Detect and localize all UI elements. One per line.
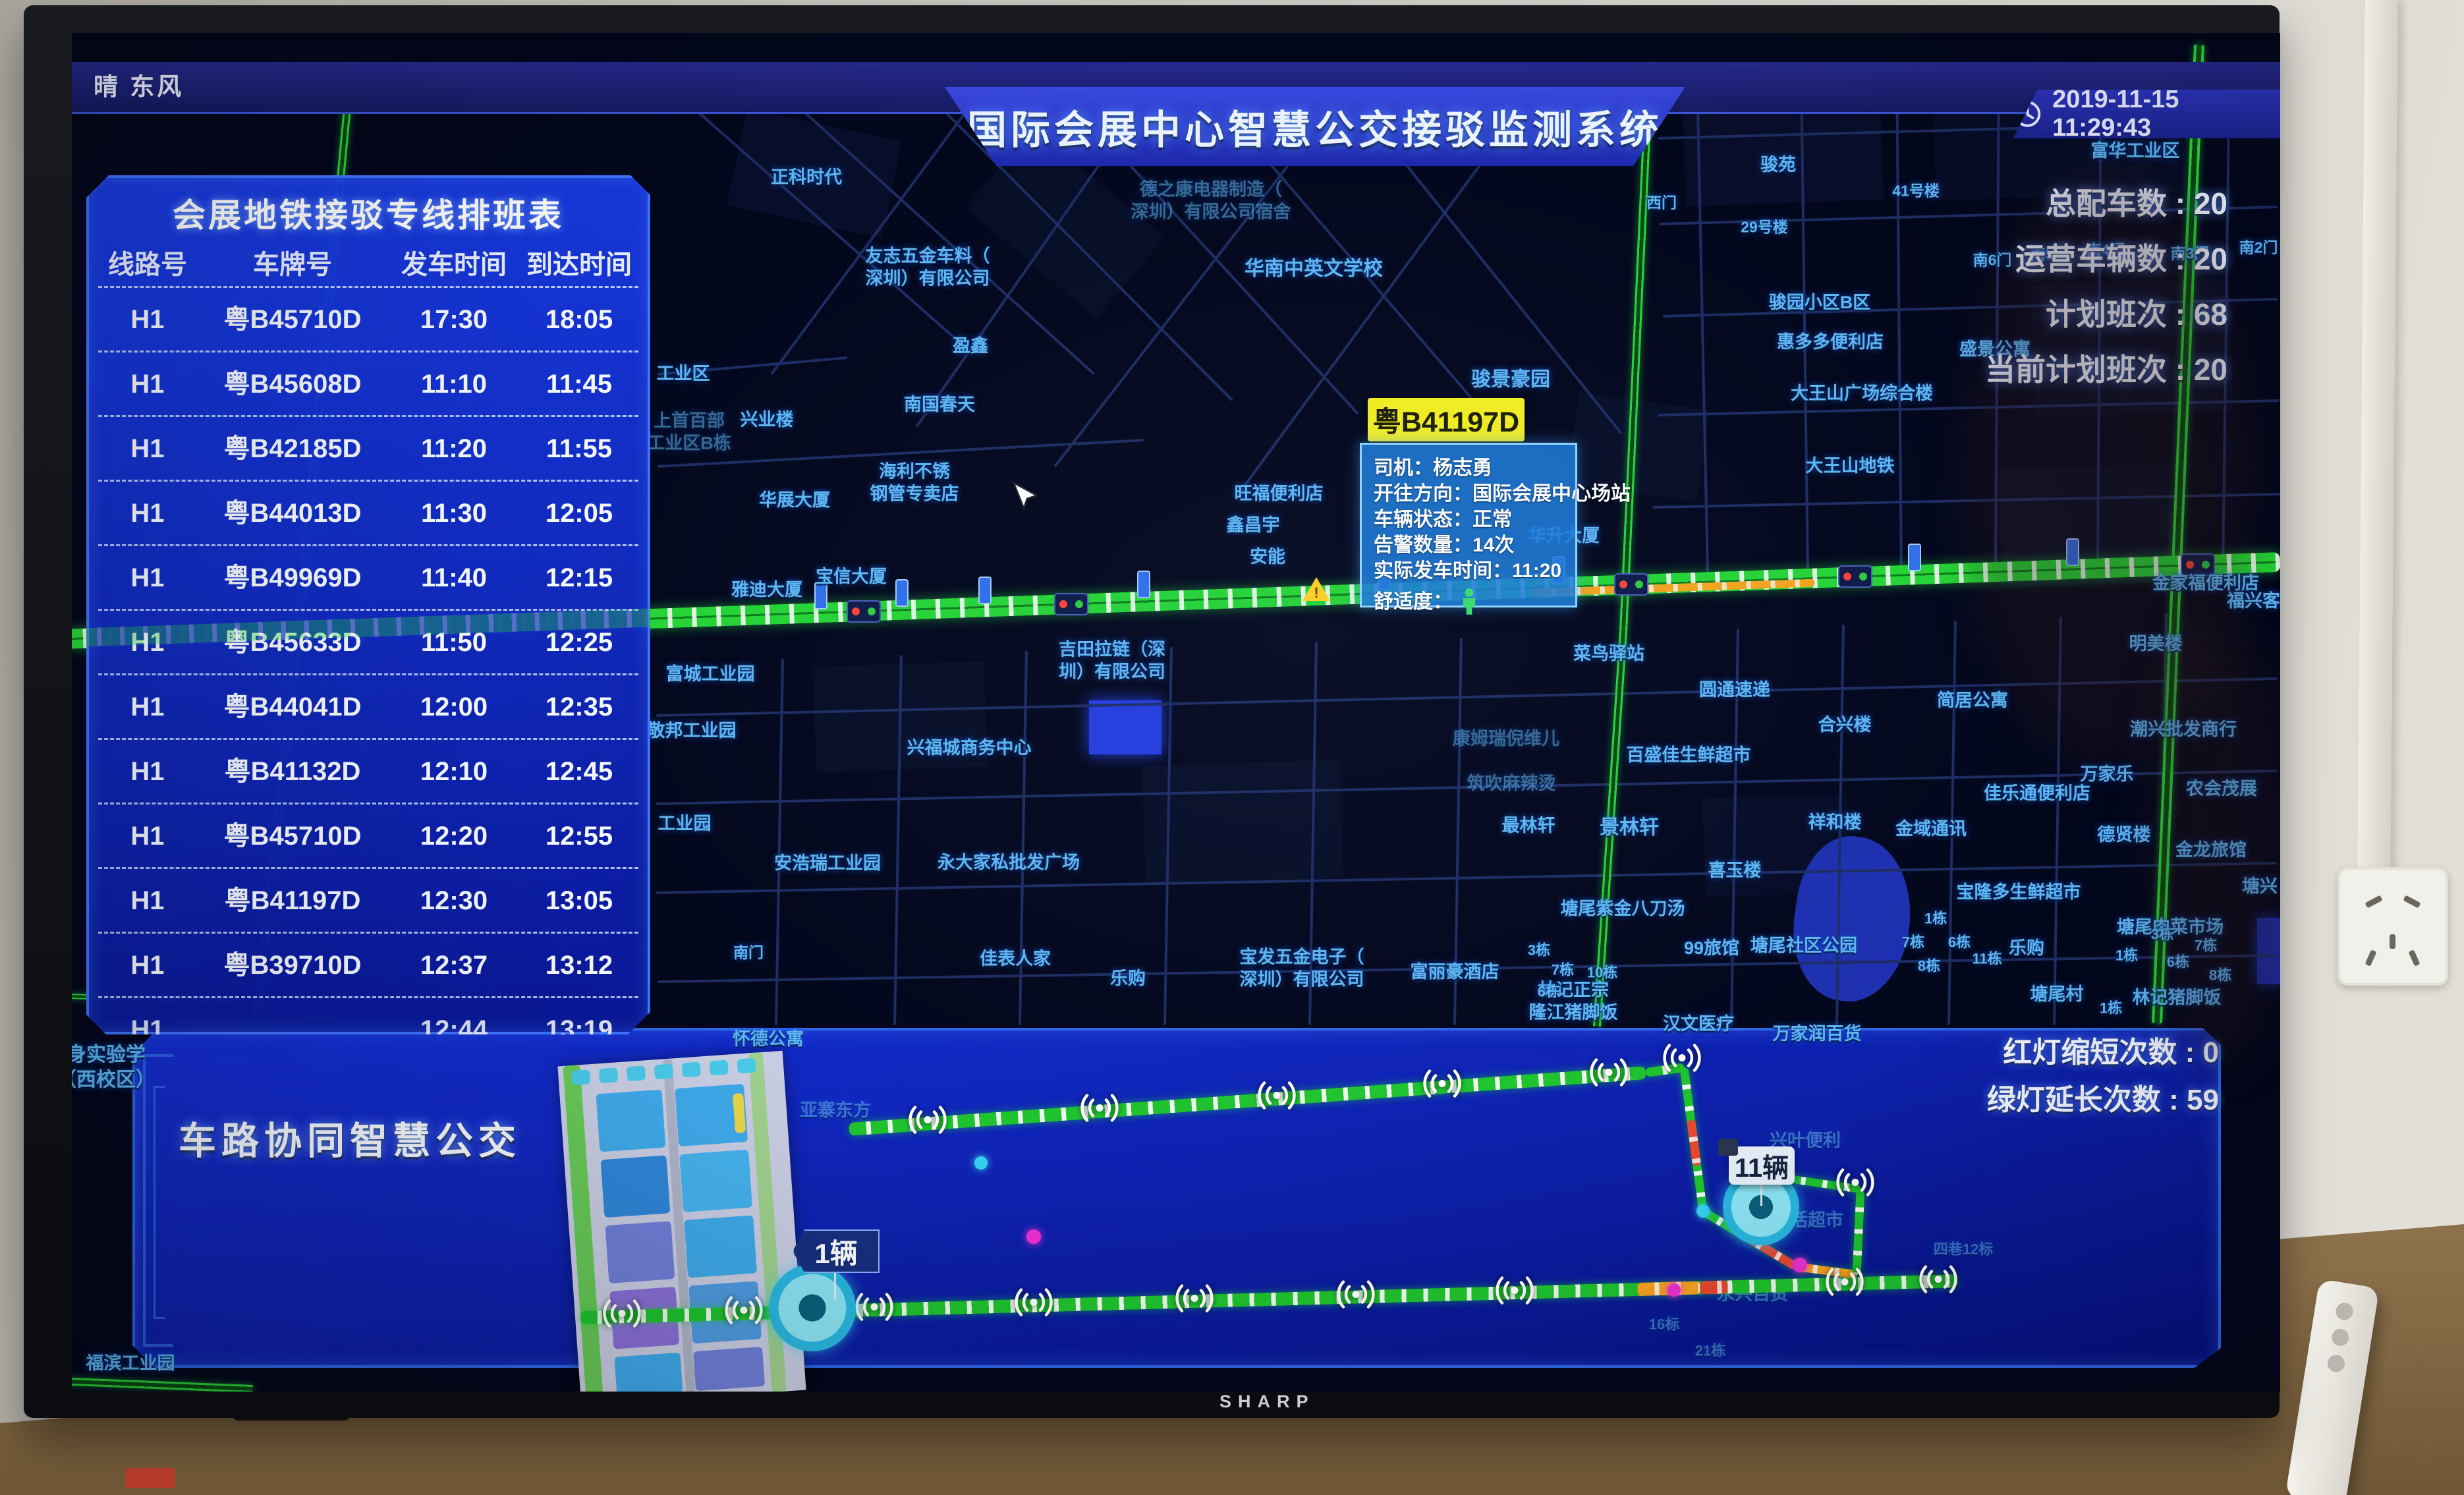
bus-info-popup: 司机：杨志勇开往方向：国际会展中心场站车辆状态：正常告警数量：14次实际发车时间… xyxy=(1360,443,1577,607)
cell-depart: 11:30 xyxy=(388,483,520,544)
map-label: 农会茂展 xyxy=(2186,778,2257,801)
green-road xyxy=(72,1376,253,1392)
highlighted-block xyxy=(1089,700,1162,754)
map-label: 怀德公寓 xyxy=(733,1029,804,1051)
map-label: 8栋 xyxy=(1918,957,1940,975)
route-status-segment xyxy=(1700,1280,1728,1294)
map-label: 景林轩 xyxy=(1600,815,1659,840)
traffic-light-icon xyxy=(847,600,881,623)
cell-depart: 12:30 xyxy=(388,870,520,931)
cell-line: H1 xyxy=(98,483,197,544)
map-label: 工业园 xyxy=(658,813,712,835)
exhibition-hall xyxy=(679,1150,752,1212)
map-label: 金龙旅馆 xyxy=(2175,839,2247,862)
map-label: 华展大厦 xyxy=(759,490,830,512)
schedule-row: H1粤B49969D11:4012:15 xyxy=(98,546,638,611)
map-label: 南国春天 xyxy=(904,394,975,416)
cell-plate: 粤B41132D xyxy=(197,741,388,802)
map-label: 德贤楼 xyxy=(2098,824,2151,847)
stat-value: 0 xyxy=(2203,1036,2219,1069)
map-label: 富丽豪酒店 xyxy=(1411,961,1499,984)
map-viewport[interactable]: ! 富华工业区正科时代友志五金车料（ 深圳）有限公司德之康电器制造（ 深圳）有限… xyxy=(72,33,2280,1392)
highlighted-block xyxy=(2257,918,2280,984)
kpi-3: 当前计划班次 : 20 xyxy=(1985,351,2227,389)
cell-line: H1 xyxy=(98,806,197,866)
photo-scene: SHARP ! 富华工业区正科时代友志五金车料（ 深圳）有限公司德之康电器制造（… xyxy=(0,0,2464,1495)
map-label: 骏景豪园 xyxy=(1471,367,1550,392)
cell-line: H1 xyxy=(98,677,197,737)
schedule-row: H1粤B45608D11:1011:45 xyxy=(98,353,638,417)
roadside-unit-icon xyxy=(1834,1168,1876,1200)
cell-plate: 粤B39710D xyxy=(197,935,388,996)
field-value: 杨志勇 xyxy=(1433,457,1492,479)
hall-roof xyxy=(599,1067,618,1083)
map-label: 21栋 xyxy=(1695,1341,1725,1360)
map-label: 旺福便利店 xyxy=(1235,483,1324,505)
map-label: 筑吹麻辣烫 xyxy=(1467,773,1556,795)
badge-stem xyxy=(834,1269,836,1299)
map-label: 99旅馆 xyxy=(1684,938,1739,960)
map-label: 正科时代 xyxy=(771,167,842,189)
column-header: 到达时间 xyxy=(520,244,638,286)
comfort-row: 舒适度： xyxy=(1374,588,1563,615)
map-label: 康姆瑞倪维儿 xyxy=(1453,728,1559,750)
roadside-unit-icon xyxy=(1421,1069,1463,1102)
cell-arrive: 12:55 xyxy=(520,806,638,866)
map-label: 29号楼 xyxy=(1741,218,1788,237)
map-label: 安浩瑞工业园 xyxy=(774,853,881,875)
map-label: 11栋 xyxy=(1972,949,2002,968)
map-label: 华南中英文学校 xyxy=(1245,256,1383,281)
roadside-unit-icon xyxy=(1013,1288,1055,1320)
hall-roof xyxy=(654,1063,673,1079)
cell-depart: 12:10 xyxy=(388,741,520,802)
bus-stop-icon xyxy=(978,577,992,604)
traffic-light-icon xyxy=(1054,593,1088,615)
map-label: 富城工业园 xyxy=(666,663,755,686)
column-header: 车牌号 xyxy=(197,244,388,286)
map-label: 6栋 xyxy=(2167,953,2189,971)
hall-roof xyxy=(571,1069,590,1085)
cell-depart: 17:30 xyxy=(388,289,520,350)
cell-line: H1 xyxy=(98,741,197,802)
map-label: 南6门 xyxy=(1973,251,2012,270)
cell-line: H1 xyxy=(98,935,197,996)
vehicle-dot xyxy=(1696,1204,1710,1218)
vehicle-dot xyxy=(974,1156,988,1170)
map-label: 合兴楼 xyxy=(1818,714,1872,737)
map-label: 南2门 xyxy=(2239,239,2278,258)
stat-label: 绿灯延长次数 xyxy=(1987,1084,2161,1116)
column-header: 线路号 xyxy=(98,244,197,286)
street-line xyxy=(1652,493,2280,509)
map-label: 佳乐通便利店 xyxy=(1984,783,2090,805)
map-label: 菜鸟驿站 xyxy=(1573,643,1644,665)
map-label: 潮兴批发商行 xyxy=(2130,719,2237,741)
map-label: 1栋 xyxy=(2115,946,2138,965)
popup-field: 实际发车时间：11:20 xyxy=(1374,558,1563,584)
vehicle-count-badge[interactable]: 1辆 xyxy=(793,1229,880,1273)
cell-arrive: 12:05 xyxy=(520,483,638,544)
map-label: 7栋 xyxy=(2195,936,2217,955)
bus-stop-icon xyxy=(1908,544,1921,571)
cell-depart: 12:44 xyxy=(388,1000,520,1035)
map-label: 翻身实验学 校（西校区） xyxy=(72,1043,155,1092)
roadside-unit-icon xyxy=(1256,1081,1298,1114)
column-header: 发车时间 xyxy=(388,244,520,286)
map-label: 6栋 xyxy=(1538,982,1560,1001)
map-label: 骏苑 xyxy=(1760,154,1796,177)
map-label: 圆通速递 xyxy=(1699,679,1770,702)
cell-arrive: 13:05 xyxy=(520,870,638,931)
map-label: 惠多多便利店 xyxy=(1777,331,1884,354)
map-label: 简居公寓 xyxy=(1937,690,2008,712)
roadside-unit-icon xyxy=(1494,1276,1536,1309)
schedule-row: H1粤B41132D12:1012:45 xyxy=(98,740,638,804)
map-label: 大王山地铁 xyxy=(1806,455,1895,478)
flag-icon xyxy=(1718,1139,1738,1156)
schedule-row: H1粤B41197D12:3013:05 xyxy=(98,869,638,934)
map-label: 塘尾紫金八刀汤 xyxy=(1561,898,1685,920)
cell-arrive: 18:05 xyxy=(520,289,638,350)
schedule-row: H1粤B44041D12:0012:35 xyxy=(98,675,638,740)
comfort-label: 舒适度： xyxy=(1374,589,1453,615)
map-label: 大王山广场综合楼 xyxy=(1791,383,1933,405)
panel-decoration xyxy=(143,1054,173,1347)
cell-plate: 粤B45710D xyxy=(197,289,388,350)
schedule-row: H1粤B45710D17:3018:05 xyxy=(98,288,638,353)
kpi-1: 运营车辆数 : 20 xyxy=(2015,240,2227,278)
map-label: 海利不锈 钢管专卖店 xyxy=(870,461,959,505)
hall-roof xyxy=(682,1061,701,1077)
cell-depart: 12:20 xyxy=(388,806,520,866)
map-label: 福滨工业园 xyxy=(86,1353,175,1375)
schedule-title: 会展地铁接驳专线排班表 xyxy=(98,187,638,244)
schedule-panel: 会展地铁接驳专线排班表 线路号车牌号发车时间到达时间 H1粤B45710D17:… xyxy=(86,175,650,1034)
cell-plate: 粤B45710D xyxy=(197,806,388,866)
schedule-row: H1粤B42185D11:2011:55 xyxy=(98,417,638,482)
map-label: 祥和楼 xyxy=(1808,812,1862,834)
map-label: 上首百部 工业区B栋 xyxy=(647,410,731,455)
cell-line: H1 xyxy=(98,870,197,931)
cell-line: H1 xyxy=(98,354,197,414)
roadside-unit-icon xyxy=(1335,1280,1377,1312)
cell-arrive: 12:45 xyxy=(520,741,638,802)
map-label: 佳表人家 xyxy=(980,948,1051,971)
field-label: 开往方向 xyxy=(1374,483,1453,505)
hall-roof xyxy=(709,1060,728,1076)
map-label: 塘尾社区公园 xyxy=(1750,935,1857,957)
map-label: 金域通讯 xyxy=(1895,818,1967,841)
map-label: 雅迪大厦 xyxy=(731,579,802,602)
signal-stat-1: 绿灯延长次数 : 59 xyxy=(1987,1081,2219,1120)
tv-bezel: SHARP ! 富华工业区正科时代友志五金车料（ 深圳）有限公司德之康电器制造（… xyxy=(24,5,2280,1418)
map-label: 10栋 xyxy=(1587,963,1617,982)
exhibition-hall xyxy=(596,1090,665,1152)
vehicle-count-badge[interactable]: 11辆 xyxy=(1729,1146,1795,1185)
roadside-unit-icon xyxy=(907,1106,949,1138)
map-inset-convention-center[interactable] xyxy=(557,1051,806,1392)
cell-line: H1 xyxy=(98,418,197,479)
map-label: 西门 xyxy=(1646,194,1677,213)
page-title: 国际会展中心智慧公交接驳监测系统 xyxy=(967,98,1663,155)
map-label: 万家润百货 xyxy=(1773,1023,1862,1046)
map-label: 百盛佳生鲜超市 xyxy=(1627,745,1751,767)
power-cable xyxy=(2357,0,2398,876)
cooperative-bus-title: 车路协同智慧公交 xyxy=(179,1111,521,1165)
map-label: 德之康电器制造（ 深圳）有限公司宿舍 xyxy=(1131,179,1291,223)
cell-line: H1 xyxy=(98,1000,197,1035)
exhibition-hall xyxy=(684,1215,757,1278)
cell-depart: 11:20 xyxy=(388,418,520,479)
schedule-header-row: 线路号车牌号发车时间到达时间 xyxy=(98,244,638,288)
badge-label: 11辆 xyxy=(1735,1146,1789,1185)
map-label: 林记猪脚饭 xyxy=(2133,987,2222,1009)
map-label: 宝隆多生鲜超市 xyxy=(1957,882,2081,904)
timestamp: 2019-11-15 11:29:43 xyxy=(2052,86,2280,142)
cell-arrive: 11:55 xyxy=(520,418,638,479)
cell-plate: 粤B42185D xyxy=(197,418,388,479)
schedule-row: H1粤B44013D11:3012:05 xyxy=(98,482,638,546)
map-label: 吉田拉链（深 圳）有限公司 xyxy=(1059,638,1165,683)
cell-plate: 粤B45608D xyxy=(197,354,388,414)
map-label: 工业区 xyxy=(657,363,710,385)
exhibition-hall xyxy=(614,1353,683,1392)
map-label: 宝信大厦 xyxy=(816,566,887,588)
traffic-light-icon xyxy=(1838,565,1872,588)
kpi-label: 计划班次 xyxy=(2046,297,2167,331)
mouse-cursor-icon xyxy=(1010,482,1040,515)
map-label: 四巷12标 xyxy=(1934,1240,1993,1258)
map-label: 宝发五金电子（ 深圳）有限公司 xyxy=(1240,946,1364,991)
cell-line: H1 xyxy=(98,289,197,350)
roadside-unit-icon xyxy=(601,1299,643,1332)
exhibition-hall xyxy=(748,1052,787,1392)
vehicle-dot xyxy=(1793,1258,1807,1272)
cell-plate: 粤B41197D xyxy=(197,870,388,931)
bus-info-fields: 司机：杨志勇开往方向：国际会展中心场站车辆状态：正常告警数量：14次实际发车时间… xyxy=(1374,455,1563,584)
vehicle-dot xyxy=(1667,1283,1681,1297)
map-label: 塘兴 xyxy=(2242,876,2278,898)
kpi-value: 20 xyxy=(2194,353,2227,387)
clock-strip: 2019-11-15 11:29:43 xyxy=(2013,90,2280,138)
map-label: 最林轩 xyxy=(1502,815,1555,837)
field-label: 司机 xyxy=(1374,457,1413,479)
map-label: 亚寨东方 xyxy=(800,1100,871,1122)
roadside-unit-icon xyxy=(1078,1094,1121,1126)
field-label: 车辆状态 xyxy=(1374,509,1453,530)
kpi-label: 总配车数 xyxy=(2046,186,2167,221)
popup-field: 司机：杨志勇 xyxy=(1374,455,1563,481)
stat-label: 红灯缩短次数 xyxy=(2003,1036,2177,1069)
kpi-value: 20 xyxy=(2194,186,2227,221)
bus-stop-icon xyxy=(1137,571,1150,598)
cell-arrive: 12:15 xyxy=(520,548,638,608)
field-value: 14次 xyxy=(1472,534,1514,556)
popup-field: 告警数量：14次 xyxy=(1374,532,1563,558)
map-label: 汉文医疗 xyxy=(1663,1013,1734,1036)
cell-arrive: 13:19 xyxy=(520,1000,638,1035)
hall-roof xyxy=(627,1065,646,1081)
street-line xyxy=(2053,617,2062,1025)
field-label: 告警数量 xyxy=(1374,534,1453,556)
map-label: 8栋 xyxy=(2209,966,2231,984)
map-label: 兴福城商务中心 xyxy=(907,737,1032,760)
kpi-value: 20 xyxy=(2194,242,2227,276)
popup-field: 车辆状态：正常 xyxy=(1374,507,1563,532)
map-label: 1栋 xyxy=(1924,909,1947,928)
map-label: 明美楼 xyxy=(2129,633,2183,656)
field-value: 11:20 xyxy=(1512,560,1561,582)
map-label: 16标 xyxy=(1649,1315,1679,1334)
map-label: 盈鑫 xyxy=(953,335,988,358)
cell-arrive: 12:35 xyxy=(520,677,638,737)
map-label: 安能 xyxy=(1250,546,1285,569)
power-outlet xyxy=(2338,867,2448,986)
weather-text: 晴 东风 xyxy=(94,62,184,112)
map-label: 喜玉楼 xyxy=(1708,860,1762,882)
roadside-unit-icon xyxy=(723,1296,765,1328)
map-label: 3栋 xyxy=(2151,925,2173,944)
roadside-unit-icon xyxy=(853,1293,895,1325)
signal-stat-0: 红灯缩短次数 : 0 xyxy=(2003,1033,2219,1073)
map-label: 富华工业区 xyxy=(2091,140,2180,163)
tv-screen: ! 富华工业区正科时代友志五金车料（ 深圳）有限公司德之康电器制造（ 深圳）有限… xyxy=(72,33,2280,1392)
map-label: 3栋 xyxy=(1528,941,1550,959)
map-label: 1栋 xyxy=(2100,999,2122,1017)
popup-field: 开往方向：国际会展中心场站 xyxy=(1374,481,1563,507)
bus-marker-tag[interactable]: 粤B41197D xyxy=(1368,398,1525,441)
cell-arrive: 13:12 xyxy=(520,935,638,996)
field-value: 国际会展中心场站 xyxy=(1472,483,1631,505)
cell-depart: 11:10 xyxy=(388,354,520,414)
roadside-unit-icon xyxy=(1661,1044,1703,1076)
map-label: 乐购 xyxy=(2009,938,2044,960)
map-label: 骏园小区B区 xyxy=(1769,292,1871,314)
roadside-unit-icon xyxy=(1917,1265,1959,1297)
field-value: 正常 xyxy=(1472,509,1512,530)
map-label: 友志五金车料（ 深圳）有限公司 xyxy=(866,245,990,290)
station-marker xyxy=(769,1264,856,1351)
cell-depart: 12:00 xyxy=(388,677,520,737)
exhibition-hall xyxy=(605,1221,675,1283)
street-line xyxy=(1895,71,1903,573)
kpi-0: 总配车数 : 20 xyxy=(2046,184,2227,223)
tv-brand-logo: SHARP xyxy=(1219,1392,1315,1412)
shelf-sticker xyxy=(125,1468,175,1488)
map-label: 7栋 xyxy=(1552,961,1574,979)
kpi-label: 当前计划班次 xyxy=(1985,353,2167,387)
map-label: 敬邦工业园 xyxy=(648,720,737,743)
roadside-unit-icon xyxy=(1173,1284,1216,1316)
cell-plate: 粤B44041D xyxy=(197,677,388,737)
map-label: 万家乐 xyxy=(2081,764,2134,786)
hall-roof xyxy=(737,1058,756,1074)
roadside-unit-icon xyxy=(1824,1268,1866,1300)
map-label: 6栋 xyxy=(1948,933,1971,951)
vehicle-dot xyxy=(1026,1229,1041,1244)
schedule-row: H112:4413:19 xyxy=(98,998,638,1034)
cell-line: H1 xyxy=(98,548,197,608)
map-label: 永大家私批发广场 xyxy=(938,852,1080,874)
badge-stem xyxy=(1760,1183,1762,1206)
cell-plate: 粤B49969D xyxy=(197,548,388,608)
title-banner: 国际会展中心智慧公交接驳监测系统 xyxy=(945,87,1685,166)
cell-depart: 11:40 xyxy=(388,548,520,608)
bus-stop-icon xyxy=(895,579,909,607)
map-label: 乐购 xyxy=(1110,968,1146,990)
traffic-light-icon xyxy=(1614,573,1648,596)
cooperative-bus-panel xyxy=(132,1028,2221,1368)
map-label: 鑫昌宇 xyxy=(1227,515,1280,537)
schedule-row: H1粤B39710D12:3713:12 xyxy=(98,934,638,998)
map-label: 41号楼 xyxy=(1892,182,1940,201)
exhibition-hall xyxy=(693,1347,765,1391)
map-label: 福兴客寓 xyxy=(2227,590,2280,613)
field-label: 实际发车时间 xyxy=(1374,560,1492,582)
schedule-body: H1粤B45710D17:3018:05H1粤B45608D11:1011:45… xyxy=(98,288,638,1034)
map-label: 7栋 xyxy=(1902,933,1924,951)
roadside-unit-icon xyxy=(1588,1058,1630,1090)
map-label: 兴业楼 xyxy=(741,409,794,432)
map-label: 塘尾村 xyxy=(2030,984,2084,1006)
kpi-2: 计划班次 : 68 xyxy=(2046,295,2227,333)
kpi-label: 运营车辆数 xyxy=(2015,242,2167,276)
schedule-row: H1粤B45710D12:2012:55 xyxy=(98,804,638,869)
cell-plate: 粤B44013D xyxy=(197,483,388,544)
bus-stop-icon xyxy=(2066,538,2079,566)
cell-depart: 12:37 xyxy=(388,935,520,996)
person-icon xyxy=(1459,588,1479,615)
stat-value: 59 xyxy=(2187,1084,2219,1116)
kpi-value: 68 xyxy=(2194,297,2227,331)
cell-arrive: 11:45 xyxy=(520,354,638,414)
exhibition-hall xyxy=(600,1155,670,1218)
map-label: 南门 xyxy=(733,944,764,963)
